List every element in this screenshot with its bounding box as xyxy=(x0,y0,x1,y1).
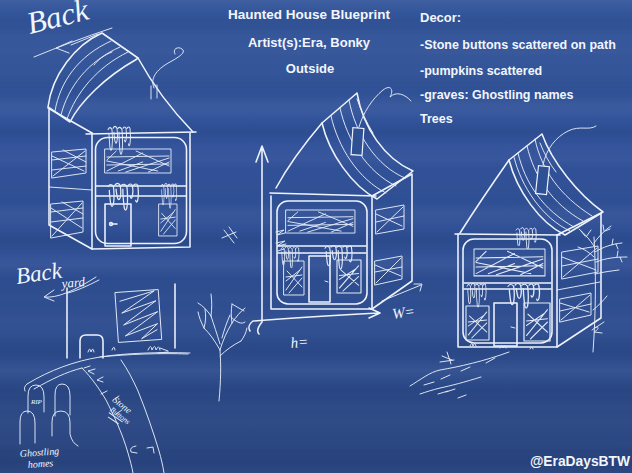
svg-text:Back: Back xyxy=(23,0,93,41)
svg-text:Haunted House Blueprint: Haunted House Blueprint xyxy=(228,7,391,22)
svg-text:Artist(s):Era, Bonky: Artist(s):Era, Bonky xyxy=(248,35,371,50)
svg-text:Outside: Outside xyxy=(286,61,334,76)
svg-text:homes: homes xyxy=(27,457,53,470)
svg-text:W=: W= xyxy=(391,303,416,322)
svg-text:Back: Back xyxy=(14,258,64,289)
svg-text:-pumpkins scattered: -pumpkins scattered xyxy=(420,64,542,78)
svg-text:-graves: Ghostling names: -graves: Ghostling names xyxy=(420,88,574,102)
svg-text:@EraDaysBTW: @EraDaysBTW xyxy=(530,454,631,469)
svg-text:h=: h= xyxy=(290,334,309,351)
svg-text:Trees: Trees xyxy=(420,112,453,126)
svg-text:-Stone buttons scattered on pa: -Stone buttons scattered on path xyxy=(420,38,616,52)
svg-text:Decor:: Decor: xyxy=(420,10,461,25)
svg-text:Ghostling: Ghostling xyxy=(19,445,59,459)
svg-text:RIP: RIP xyxy=(30,398,43,406)
